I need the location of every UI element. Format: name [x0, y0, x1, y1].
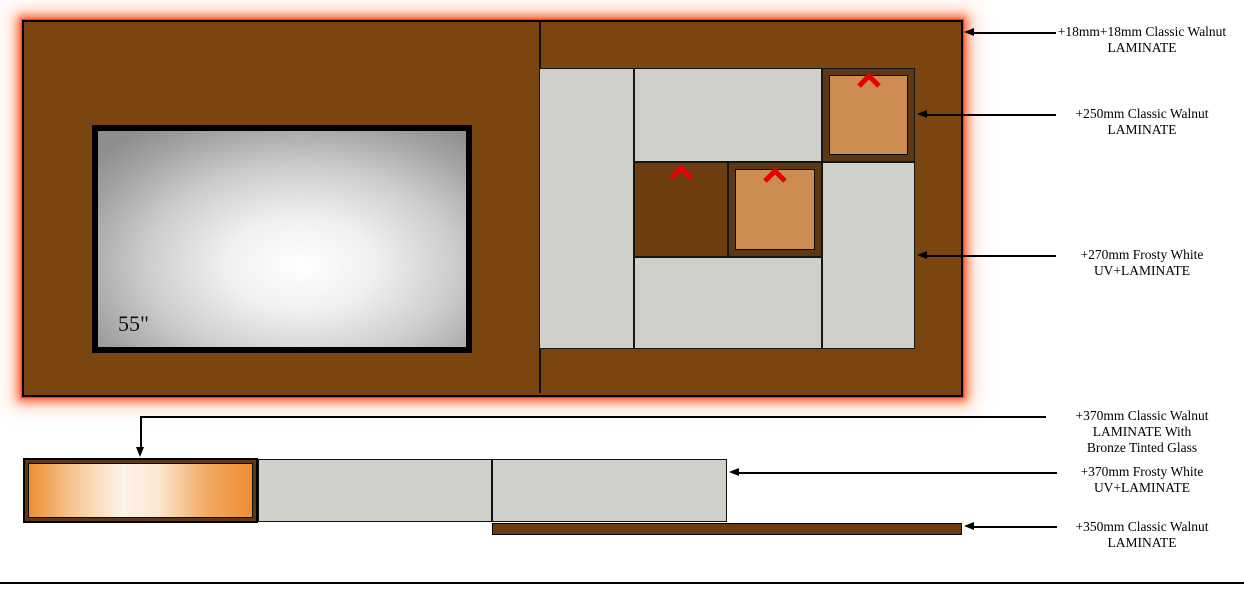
tv: 55": [92, 125, 472, 353]
open-shelf-bottom: [634, 257, 822, 349]
annotation-250mm-laminate: +250mm Classic Walnut LAMINATE: [1040, 106, 1244, 138]
annotation-370mm-bronze-glass: +370mm Classic Walnut LAMINATE With Bron…: [1040, 408, 1244, 455]
drawer-face: [735, 169, 815, 250]
ground-line: [0, 582, 1244, 584]
leader-line: [737, 472, 1057, 474]
drawer-unit-mid: [728, 162, 822, 257]
drawer-face: [28, 463, 253, 518]
annotation-270mm-frosty: +270mm Frosty White UV+LAMINATE: [1040, 247, 1244, 279]
leader-line: [925, 255, 1056, 257]
leader-line: [140, 416, 1046, 418]
wall-unit-panel: 55": [22, 20, 963, 397]
drawer-unit-250mm: [822, 68, 915, 162]
drawer-unit-370mm-bronze-glass: [23, 458, 258, 523]
chevron-up-icon: [856, 73, 882, 89]
base-cabinet-right: [492, 459, 727, 522]
chevron-up-icon: [762, 168, 788, 184]
furniture-elevation-drawing: 55": [0, 0, 1244, 592]
tv-size-label: 55": [118, 311, 149, 337]
walnut-flap-panel: [634, 162, 728, 257]
tv-screen: 55": [98, 131, 466, 347]
arrowhead-down-icon: [136, 447, 144, 457]
drawer-face: [829, 75, 908, 155]
chevron-up-icon: [668, 165, 694, 181]
leader-line: [925, 114, 1056, 116]
plinth-panel-350mm: [492, 523, 962, 535]
open-shelf-top: [634, 68, 822, 162]
open-shelf-left: [539, 68, 634, 349]
leader-line: [140, 416, 142, 448]
annotation-18mm-laminate: +18mm+18mm Classic Walnut LAMINATE: [1040, 24, 1244, 56]
open-shelf-right: [822, 162, 915, 349]
annotation-370mm-frosty: +370mm Frosty White UV+LAMINATE: [1040, 464, 1244, 496]
base-cabinet-left: [258, 459, 492, 522]
annotation-350mm-laminate: +350mm Classic Walnut LAMINATE: [1040, 519, 1244, 551]
